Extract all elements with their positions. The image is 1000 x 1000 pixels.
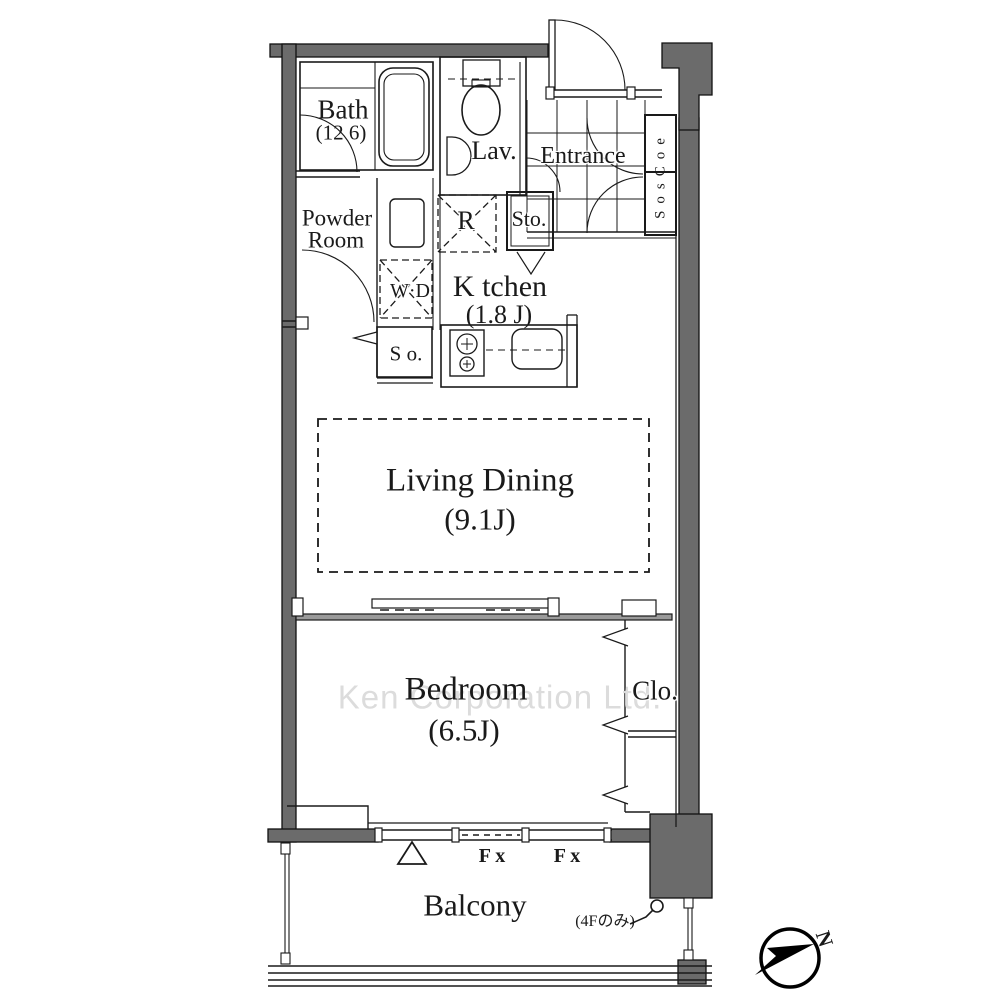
bathtub-inner xyxy=(384,74,424,160)
stove xyxy=(450,330,484,376)
living-dining-size-label: (9.1J) xyxy=(444,504,515,535)
kitchen-sink xyxy=(512,329,562,369)
partition-track xyxy=(372,599,552,608)
toilet-tank xyxy=(463,60,500,86)
washer-dryer-label: W·D xyxy=(390,281,430,301)
pillar-top-right xyxy=(662,43,712,130)
closet-door-marker-1 xyxy=(603,628,628,646)
wall-bottom-left xyxy=(268,829,378,842)
closet-label: Clo. xyxy=(632,678,678,705)
floor-note-label: (4Fのみ) xyxy=(575,914,635,930)
lav-sink xyxy=(447,137,471,175)
entrance-label: Entrance xyxy=(540,144,625,168)
pillar-bottom-right xyxy=(650,814,712,898)
balcony-label: Balcony xyxy=(423,890,526,921)
vanity-basin xyxy=(390,199,424,247)
door-stop-marker xyxy=(354,332,377,344)
shoes-closet-label: SosCoe xyxy=(654,131,669,219)
living-dining-label: Living Dining xyxy=(386,465,574,498)
kitchen-size-label: (1.8 J) xyxy=(466,302,532,328)
triangle-marker xyxy=(398,842,426,864)
bath-label: Bath xyxy=(318,97,369,124)
bedroom-label: Bedroom xyxy=(405,674,528,707)
refrigerator-label: R xyxy=(457,208,474,234)
powder-room-label-line1: Powder xyxy=(302,207,372,230)
wall-right xyxy=(679,118,699,830)
toilet-bowl xyxy=(462,85,500,135)
powder-room-label-line2: Room xyxy=(308,229,364,252)
wall-bottom-mid xyxy=(610,829,652,842)
floor-plan: Bath (12 6) Lav. Entrance SosCoe Powder … xyxy=(0,0,1000,1000)
storage-label: Sto. xyxy=(512,208,547,230)
storage-small-label: S o. xyxy=(390,344,423,365)
balcony-railing xyxy=(268,966,712,986)
kitchen-label: K tchen xyxy=(453,272,547,302)
entry-door-arc xyxy=(555,20,625,90)
faucet-note-leader xyxy=(630,900,663,924)
shoes-door-arc-bottom xyxy=(587,177,643,233)
bathtub xyxy=(379,68,429,166)
sliding-partition xyxy=(292,598,672,620)
lavatory-label: Lav. xyxy=(471,138,516,164)
powder-door-arc xyxy=(302,250,374,322)
kitchen-counter xyxy=(441,325,577,387)
closet-door-marker-2 xyxy=(603,716,628,734)
fix-window-label-2: F x xyxy=(554,846,580,866)
wall-left xyxy=(282,44,296,842)
lavatory-room xyxy=(433,57,560,195)
entry-door-leaf xyxy=(549,20,555,90)
wall-top xyxy=(270,44,548,57)
bedroom-size-label: (6.5J) xyxy=(428,715,499,746)
closet-door-marker-3 xyxy=(603,786,628,804)
fix-window-label-1: F x xyxy=(479,846,505,866)
compass-icon xyxy=(755,929,819,987)
bath-size-label: (12 6) xyxy=(316,123,367,144)
